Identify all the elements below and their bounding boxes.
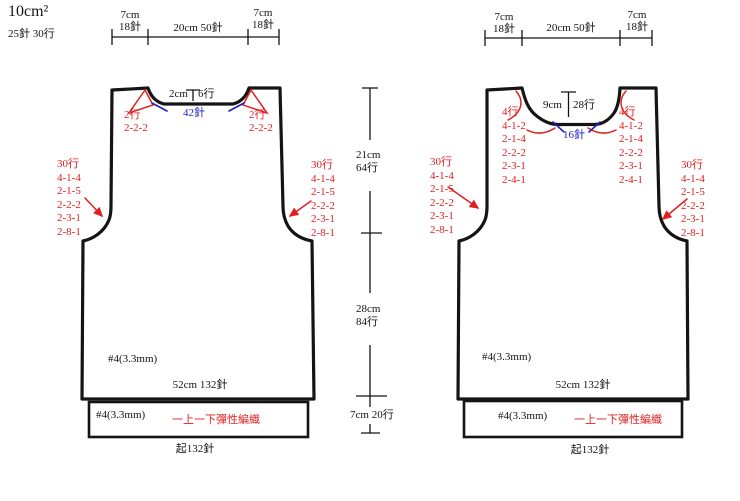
gauge-tension-label: 25針 30行 [8,28,55,40]
back-needle-size: #4(3.3mm) [108,353,157,365]
knitting-pattern-diagram: 10cm² 25針 30行 7cm 18針 20cm 50針 7cm 18針 2… [0,0,740,501]
front-neck-shaping-right: 4行 4-1-2 2-1-4 2-2-2 2-3-1 2-4-1 [619,106,643,187]
back-neck-width: 20cm 50針 [148,22,248,34]
back-armhole-arrow-right [290,201,311,216]
front-armhole-shaping-right: 30行 4-1-4 2-1-5 2-2-2 2-3-1 2-8-1 [681,159,705,240]
gauge-size-label: 10cm² [8,3,48,21]
back-neck-shaping-right: 2行 2-2-2 [249,109,273,135]
side-dim-line [356,88,387,433]
front-neck-depth-rows: 28行 [573,99,595,111]
back-neck-shaping-left: 2行 2-2-2 [124,109,148,135]
back-cast-on-label: 起132針 [150,443,240,455]
front-armhole-shaping-left: 30行 4-1-4 2-1-5 2-2-2 2-3-1 2-8-1 [430,156,454,237]
front-neck-shaping-left: 4行 4-1-2 2-1-4 2-2-2 2-3-1 2-4-1 [502,106,526,187]
front-shoulder-width-left: 7cm 18針 [484,11,524,35]
back-band-needle-size: #4(3.3mm) [96,409,145,421]
back-armhole-shaping-right: 30行 4-1-4 2-1-5 2-2-2 2-3-1 2-8-1 [311,159,335,240]
back-armhole-arrow-left [85,198,102,216]
back-band-stitch-label: 一上一下彈性編織 [172,414,260,426]
back-shoulder-width-right: 7cm 18針 [243,7,283,31]
front-shoulder-width-right: 7cm 18針 [617,9,657,33]
front-bottom-width: 52cm 132針 [533,379,633,391]
front-cast-on-label: 起132針 [545,444,635,456]
front-neck-depth-cm: 9cm [536,99,562,111]
side-dim-lower: 7cm 20行 [350,409,394,421]
front-band-needle-size: #4(3.3mm) [498,410,547,422]
back-bottom-width: 52cm 132針 [150,379,250,391]
side-dim-upper: 21cm 64行 [356,149,380,175]
front-neck-hook-left [527,128,555,133]
back-neck-depth-rows: 6行 [198,88,215,100]
front-neck-width: 20cm 50針 [522,22,620,34]
front-band-stitch-label: 一上一下彈性編織 [574,414,662,426]
front-needle-size: #4(3.3mm) [482,351,531,363]
back-shoulder-width-left: 7cm 18針 [110,9,150,33]
side-dim-middle: 28cm 84行 [356,303,380,329]
back-neck-stitches: 42針 [175,107,213,119]
front-neck-stitches: 16針 [555,129,593,141]
back-neck-depth-cm: 2cm [160,88,188,100]
back-armhole-shaping-left: 30行 4-1-4 2-1-5 2-2-2 2-3-1 2-8-1 [57,158,81,239]
